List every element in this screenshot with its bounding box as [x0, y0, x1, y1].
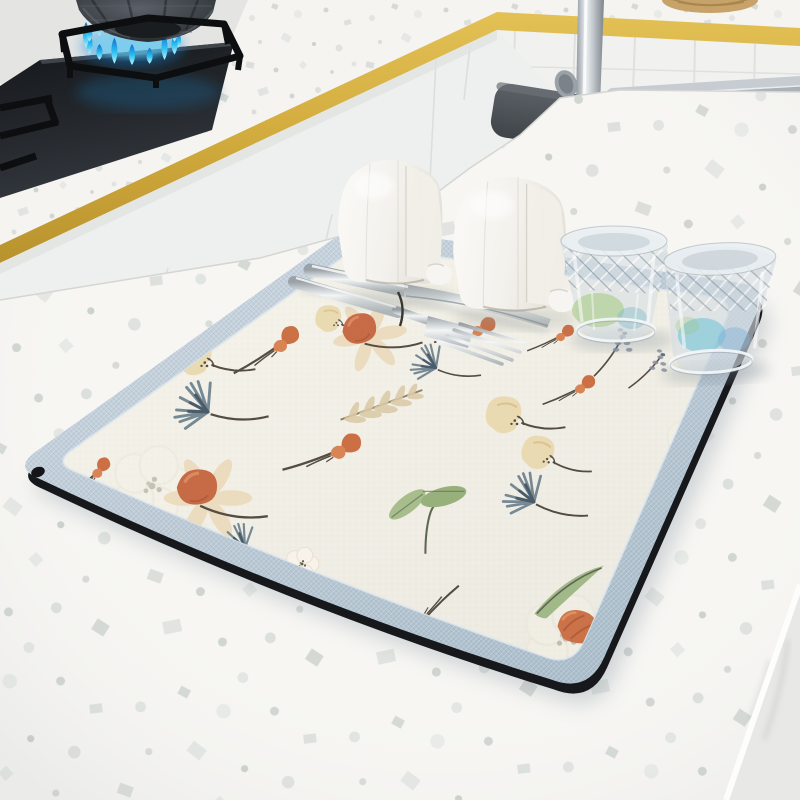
faucet-column	[576, 0, 604, 106]
container-1-shadow	[342, 287, 454, 309]
kitchen-product-photo	[0, 0, 800, 800]
glass-1	[560, 226, 674, 351]
scene-svg	[0, 0, 800, 800]
